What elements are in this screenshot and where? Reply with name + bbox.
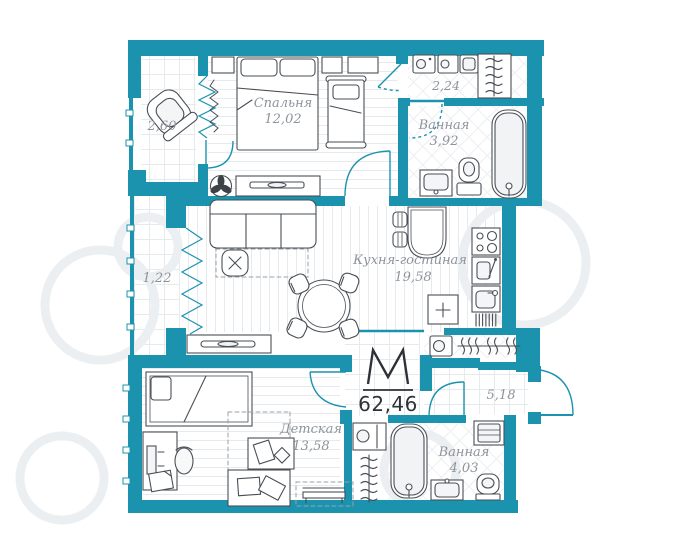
total-area-value: 62,46 xyxy=(358,392,418,416)
area-label-bathroom-bottom: 4,03 xyxy=(450,462,479,476)
room-label-bathroom-bottom: Ванная xyxy=(439,446,490,460)
area-label-bedroom: 12,02 xyxy=(264,113,301,127)
coffee-table-icon xyxy=(222,250,248,276)
sofa-icon xyxy=(210,200,316,248)
nightstand-icon xyxy=(322,57,342,73)
dish-rack-icon xyxy=(476,314,496,326)
area-label-kitchen-living: 19,58 xyxy=(394,271,431,285)
area-label-children: 13,58 xyxy=(292,440,329,454)
tv-console-bedroom-icon xyxy=(236,176,320,196)
kids-sofa-icon xyxy=(228,470,290,506)
area-label-balcony-left: 1,22 xyxy=(143,272,172,286)
area-label-hall-entry: 5,18 xyxy=(487,389,516,403)
bar-counter-icon xyxy=(408,207,446,258)
toilet-icon xyxy=(476,474,500,500)
area-label-balcony-top: 2,60 xyxy=(148,120,177,134)
wardrobe-top-icon xyxy=(348,57,378,73)
desk-chair-icon xyxy=(175,447,193,474)
area-label-bathroom-top: 3,92 xyxy=(430,135,459,149)
stove-icon xyxy=(472,228,500,255)
floorplan-canvas: Спальня 12,02 2,60 2,24 Ванная 3,92 1,22… xyxy=(0,0,687,540)
laundry-basket-icon xyxy=(460,55,478,73)
nightstand-icon xyxy=(212,57,234,73)
toy-rug-icon xyxy=(248,438,294,469)
kitchen-sink-icon xyxy=(472,286,500,312)
tv-console-living-icon xyxy=(187,335,271,353)
washing-machine-icon xyxy=(413,55,435,73)
sink-icon xyxy=(420,170,452,196)
washing-machine-icon xyxy=(474,421,504,445)
area-label-hallway-top: 2,24 xyxy=(432,79,460,93)
dryer-icon xyxy=(438,55,458,73)
bathtub-icon xyxy=(492,110,526,198)
kids-bed-icon xyxy=(146,372,252,426)
room-label-bathroom-top: Ванная xyxy=(419,119,470,133)
single-bed-icon xyxy=(326,76,366,148)
floorplan-drawing xyxy=(0,0,687,540)
pillow-icon xyxy=(333,85,359,99)
pillow-icon xyxy=(151,377,171,400)
closet-rail-icon xyxy=(361,455,377,502)
pillow-icon xyxy=(280,59,315,76)
bar-stool-icon xyxy=(393,212,407,227)
washing-machine-icon xyxy=(430,336,452,356)
pillow-icon xyxy=(241,59,277,76)
room-label-kitchen-living: Кухня-гостиная xyxy=(353,254,467,268)
closet-washer-icon xyxy=(353,423,386,450)
sink-icon xyxy=(431,479,463,500)
fridge-icon xyxy=(428,295,458,324)
room-label-children: Детская xyxy=(280,423,342,437)
bathtub-icon xyxy=(391,424,427,498)
wardrobe-icon xyxy=(478,54,511,98)
toilet-icon xyxy=(457,158,481,195)
paper-icon xyxy=(149,470,174,492)
bar-stool-icon xyxy=(393,232,407,247)
room-label-bedroom: Спальня xyxy=(254,97,313,111)
cutting-board-icon xyxy=(472,257,500,284)
